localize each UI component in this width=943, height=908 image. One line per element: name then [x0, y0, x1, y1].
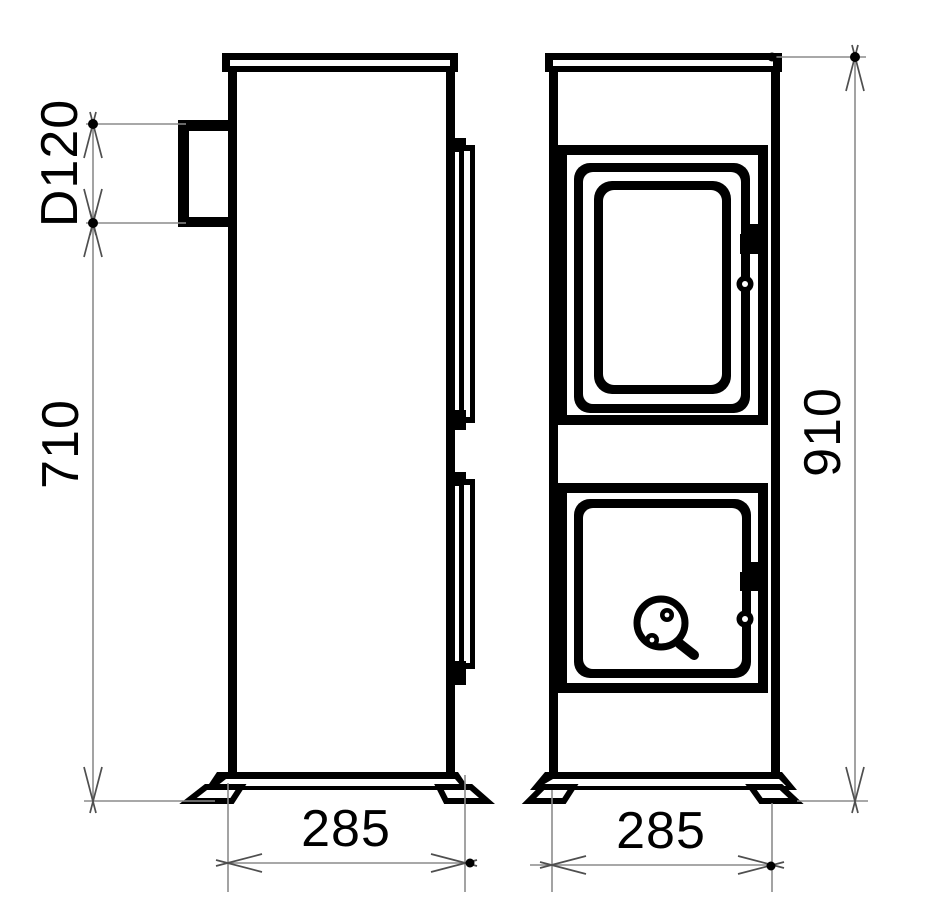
side-right-foot: [439, 787, 487, 801]
front-top-plate-groove: [553, 60, 773, 66]
air-knob-screw-top-hole: [665, 613, 670, 618]
node-dot: [88, 119, 98, 129]
lower-door-knob-hole: [742, 616, 748, 622]
dim-label-depth: 285: [301, 800, 391, 858]
dim-width: 285: [530, 790, 784, 892]
arrowhead: [738, 856, 784, 868]
arrowhead: [90, 211, 102, 257]
arrowhead: [216, 854, 262, 866]
node-dot: [88, 218, 98, 228]
arrowhead: [216, 860, 262, 872]
upper-door-hinge-plate: [748, 224, 758, 254]
node-dot: [850, 52, 860, 62]
air-knob-screw-bottom-hole: [650, 638, 655, 643]
front-view: [529, 53, 797, 801]
arrowhead: [846, 767, 858, 813]
front-right-wall: [771, 72, 780, 773]
side-top-plate-groove: [230, 60, 450, 66]
arrowhead: [540, 862, 586, 874]
dim-label-width: 285: [616, 802, 706, 860]
side-view: [178, 53, 487, 801]
arrowhead: [540, 856, 586, 868]
lower-door-edge-step-bottom: [455, 661, 466, 685]
upper-door: [557, 145, 768, 425]
dim-overall-height: 910: [768, 45, 869, 813]
node-dot: [767, 862, 776, 871]
arrowhead: [90, 112, 102, 158]
side-back-wall: [446, 72, 455, 773]
arrowhead: [84, 767, 96, 813]
side-left-foot: [188, 787, 241, 801]
lower-door-edge-leaf-groove: [464, 485, 470, 663]
lower-door-latch-block: [740, 572, 749, 591]
dim-label-overall-height: 910: [794, 387, 852, 477]
side-base-plinth-groove: [217, 779, 461, 786]
technical-drawing-page: D120 710 910 285: [0, 0, 943, 908]
arrowhead: [852, 45, 864, 91]
lower-door-hinge-plate: [748, 562, 758, 591]
upper-door-latch-block: [740, 234, 749, 254]
upper-door-edge-leaf-groove: [464, 151, 470, 417]
stove-drawing-svg: D120 710 910 285: [0, 0, 943, 908]
dim-label-flue-diameter: D120: [31, 99, 89, 227]
upper-door-glass: [603, 190, 722, 385]
node-dot: [768, 53, 777, 62]
upper-door-latch-bar: [742, 254, 748, 278]
front-left-wall: [549, 72, 558, 773]
arrowhead: [90, 767, 102, 813]
arrowhead: [738, 862, 784, 874]
flue-collar-bore: [189, 131, 228, 217]
dim-label-flue-height: 710: [32, 399, 90, 489]
upper-door-edge-step-bottom: [455, 410, 466, 430]
dim-depth: 285: [216, 775, 477, 892]
upper-door-knob-hole: [742, 281, 748, 287]
arrowhead: [852, 767, 864, 813]
lower-door: [557, 483, 768, 693]
arrowhead: [846, 45, 858, 91]
node-dot: [466, 859, 475, 868]
